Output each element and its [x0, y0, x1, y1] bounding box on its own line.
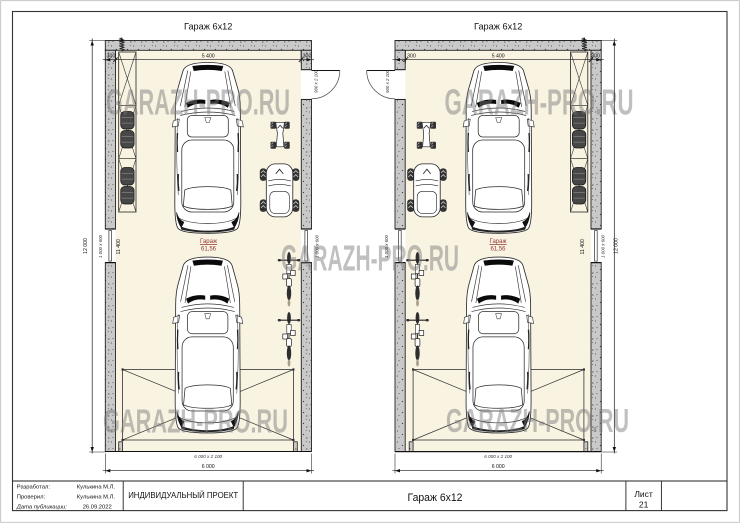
- svg-text:300: 300: [591, 53, 600, 59]
- svg-text:5 400: 5 400: [202, 53, 215, 59]
- svg-text:6 000 х 2 100: 6 000 х 2 100: [194, 454, 222, 459]
- svg-text:900 х 2 100: 900 х 2 100: [313, 69, 318, 93]
- svg-text:Лист: Лист: [634, 489, 653, 499]
- svg-text:26.09.2022: 26.09.2022: [83, 504, 112, 510]
- svg-text:61,56: 61,56: [490, 247, 506, 253]
- svg-text:1 000 х 600: 1 000 х 600: [384, 234, 389, 258]
- svg-text:ИНДИВИДУАЛЬНЫЙ ПРОЕКТ: ИНДИВИДУАЛЬНЫЙ ПРОЕКТ: [128, 489, 238, 500]
- svg-text:6 000 х 2 100: 6 000 х 2 100: [484, 454, 512, 459]
- svg-text:Гараж 6х12: Гараж 6х12: [408, 492, 463, 504]
- svg-text:Разработал:: Разработал:: [17, 485, 51, 491]
- svg-text:6 000: 6 000: [202, 464, 215, 470]
- svg-text:1 000 х 600: 1 000 х 600: [98, 234, 103, 258]
- svg-text:1 000 х 600: 1 000 х 600: [314, 234, 319, 258]
- svg-text:300: 300: [407, 53, 416, 59]
- svg-text:GARAZH-PRO.RU: GARAZH-PRO.RU: [445, 82, 634, 123]
- svg-text:Проверил:: Проверил:: [17, 494, 46, 500]
- svg-text:Кулькина М.Л.: Кулькина М.Л.: [77, 485, 116, 491]
- svg-text:6 000: 6 000: [492, 464, 505, 470]
- svg-text:GARAZH-PRO.RU: GARAZH-PRO.RU: [281, 238, 459, 279]
- svg-text:300: 300: [107, 53, 116, 59]
- svg-text:Дата публикации:: Дата публикации:: [16, 504, 67, 510]
- svg-text:300: 300: [303, 53, 312, 59]
- svg-text:12 000: 12 000: [83, 238, 89, 254]
- svg-text:11 400: 11 400: [580, 239, 586, 255]
- svg-text:Кулькина М.Л.: Кулькина М.Л.: [77, 494, 116, 500]
- svg-text:12 000: 12 000: [614, 238, 620, 254]
- svg-text:Гараж 6х12: Гараж 6х12: [474, 21, 522, 31]
- svg-text:11 400: 11 400: [116, 239, 122, 255]
- svg-text:GARAZH-PRO.RU: GARAZH-PRO.RU: [106, 82, 290, 123]
- svg-text:21: 21: [639, 499, 649, 509]
- svg-text:Гараж 6х12: Гараж 6х12: [184, 21, 232, 31]
- svg-text:1 000 х 600: 1 000 х 600: [601, 234, 606, 258]
- svg-text:GARAZH-PRO.RU: GARAZH-PRO.RU: [446, 403, 629, 440]
- svg-text:900 х 2 100: 900 х 2 100: [385, 69, 390, 93]
- svg-text:61,56: 61,56: [201, 247, 217, 253]
- svg-text:5 400: 5 400: [492, 53, 505, 59]
- svg-text:GARAZH-PRO.RU: GARAZH-PRO.RU: [103, 404, 288, 441]
